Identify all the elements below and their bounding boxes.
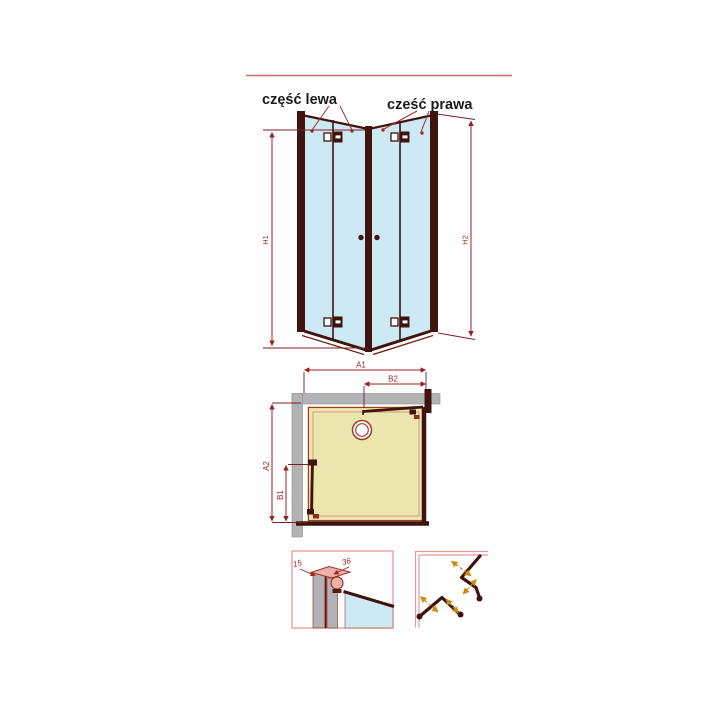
dim-h1: H1 bbox=[261, 235, 270, 245]
drain-icon bbox=[353, 421, 372, 440]
technical-drawing: część lewa cześć prawa H1 H2 bbox=[0, 0, 720, 720]
drawing-page: część lewa cześć prawa H1 H2 bbox=[0, 0, 720, 720]
profile-detail: 15 36 bbox=[292, 551, 394, 628]
label-left-part: część lewa bbox=[262, 92, 338, 108]
dim-h2: H2 bbox=[461, 235, 470, 245]
dim-b1: B1 bbox=[276, 490, 285, 500]
plan-view: A1 B2 A2 B1 bbox=[262, 361, 440, 538]
label-right-part: cześć prawa bbox=[387, 97, 473, 113]
dim-15: 15 bbox=[292, 558, 303, 569]
glass-section bbox=[344, 592, 395, 629]
dim-a2: A2 bbox=[262, 461, 271, 471]
dim-a1: A1 bbox=[356, 361, 366, 370]
folding-detail bbox=[415, 551, 488, 628]
pivot-dots bbox=[417, 596, 483, 620]
wall-profile-section bbox=[311, 567, 350, 629]
elevation-view: część lewa cześć prawa H1 H2 bbox=[261, 92, 475, 355]
dim-36: 36 bbox=[341, 556, 352, 567]
dim-b2: B2 bbox=[388, 375, 398, 384]
